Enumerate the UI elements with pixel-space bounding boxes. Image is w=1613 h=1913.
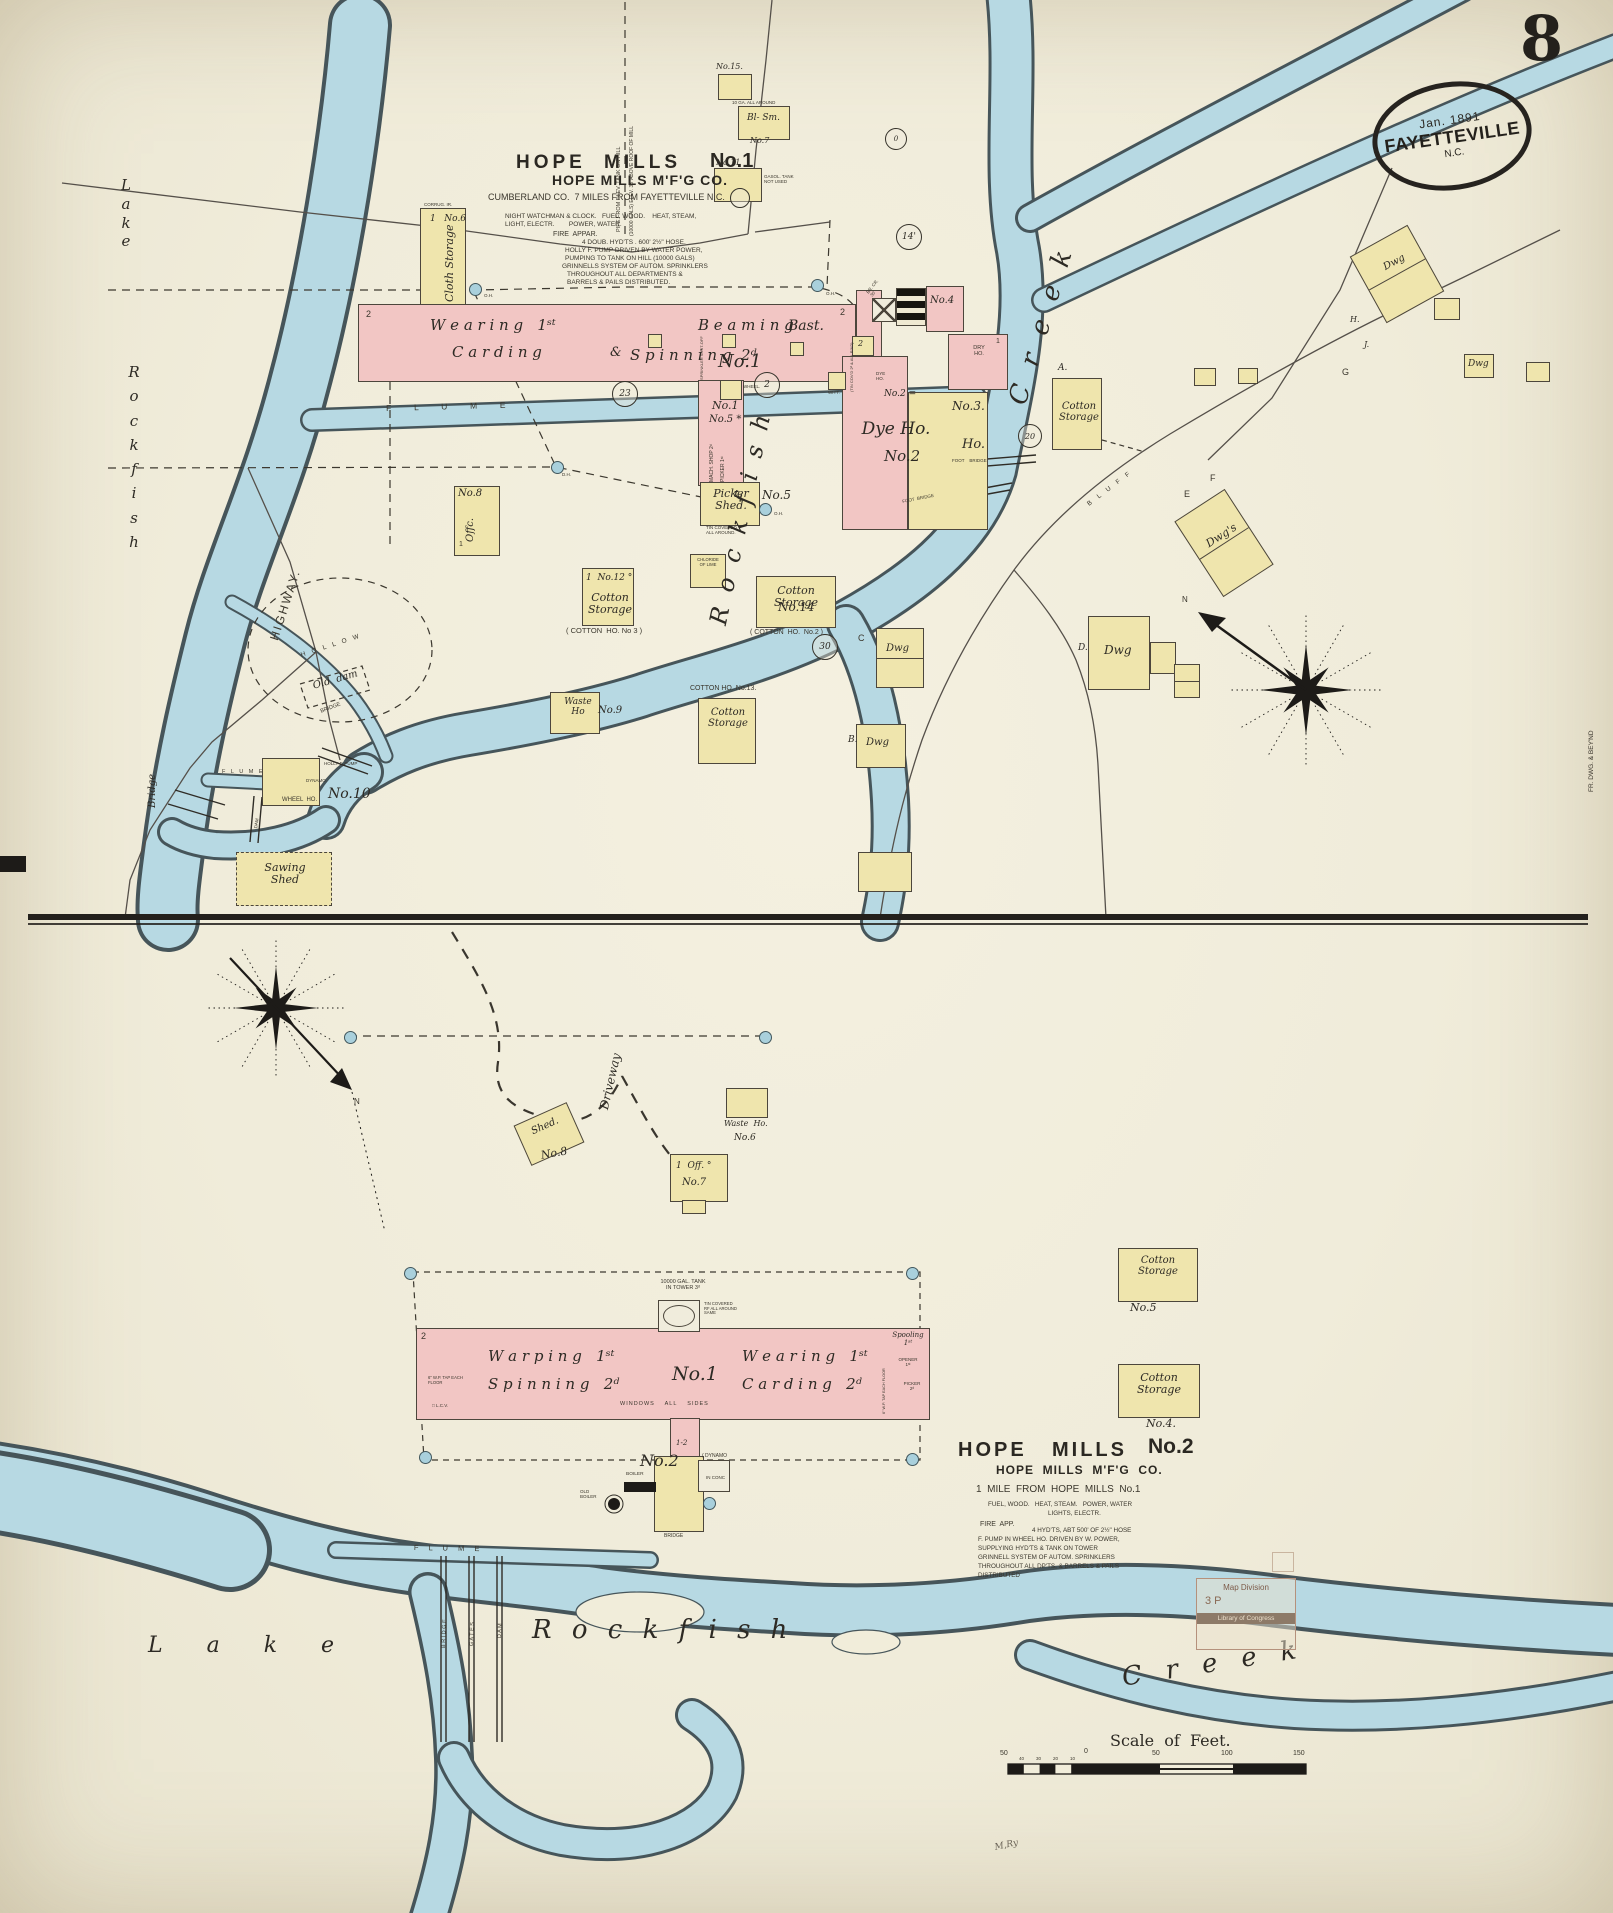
- lbl-compass2-n: N: [354, 1098, 360, 1107]
- lbl-dynamo2: ( DYNAMO: [702, 1454, 727, 1459]
- lbl-wptap: 6" W.P. TAP EACHFLOOR: [428, 1376, 472, 1385]
- bldg-no15: [718, 74, 752, 100]
- waypoint-14: 14': [896, 224, 922, 250]
- lbl-off7: 1 Off. °: [676, 1162, 711, 1172]
- lbl-sprinkler-riser: SPRINKLER SHUT-OFF: [700, 336, 704, 380]
- lbl-tincov-tower: TIN COVEREDRF ALL AROUNDSAME: [704, 1302, 760, 1316]
- lbl-box2: 2: [858, 340, 863, 349]
- waypoint-20: 20: [1018, 424, 1042, 448]
- pipe-note-1: PIPE FROM ELEV. TANK ON HILL: [617, 147, 623, 232]
- lbl-no5d: No.5: [1130, 1302, 1157, 1314]
- compass-rose-bottom: [206, 938, 385, 1232]
- bldg-waste-no6: [726, 1088, 768, 1118]
- scale-150: 150: [1293, 1750, 1305, 1758]
- lbl-carding1: C a r d i n g: [452, 344, 542, 360]
- scale-bar: [1008, 1764, 1306, 1774]
- lbl-cotton-ho3: ( COTTON HO. No 3 ): [566, 627, 642, 635]
- lbl-wearing1: W e a r i n g 1ˢᵗ: [430, 317, 556, 333]
- title2-no2: No.2: [1148, 1436, 1194, 1459]
- note2-grinnell: GRINNELL SYSTEM OF AUTOM. SPRINKLERS: [978, 1555, 1115, 1562]
- lbl-fr-dwg: FR. DWG. & BEY'ND: [1588, 730, 1595, 792]
- waypoint-30: 30: [812, 634, 838, 660]
- note2-fuel: FUEL, WOOD. HEAT, STEAM. POWER, WATER: [988, 1502, 1132, 1509]
- lbl-tank: 10000 GAL. TANKIN TOWER 3ᵈ: [640, 1280, 726, 1292]
- yard2-c2: [906, 1267, 919, 1280]
- lbl-one-dry: 1: [996, 338, 1000, 346]
- hydrant-oh2: [811, 279, 824, 292]
- lbl-corrug: CORRUG. IR.: [424, 203, 452, 208]
- title-cumberland: CUMBERLAND CO. 7 MILES FROM FAYETTEVILLE…: [488, 193, 725, 203]
- bldg-dwg-s: [858, 852, 912, 892]
- lbl-machshop: MACH. SHOP 2ᵈ: [710, 444, 715, 482]
- scale-100: 100: [1221, 1750, 1233, 1758]
- title2-mfg: HOPE MILLS M'F'G CO.: [996, 1464, 1163, 1477]
- lbl-no3: No.3.: [952, 400, 985, 413]
- lbl-no15: No.15.: [716, 63, 743, 72]
- lbl-bridge-v: Bridge: [148, 774, 159, 808]
- lbl-10ga: 10 GA. ALL AROUND: [732, 101, 775, 106]
- lbl-oh3: O.H.: [774, 512, 783, 517]
- lbl-gasol: GASOL. TANKNOT USED: [764, 175, 794, 185]
- lbl-no10: No.10: [328, 787, 371, 802]
- note-light: LIGHT, ELECTR. POWER, WATER.: [505, 221, 622, 228]
- lbl-oh2: O.H.: [826, 292, 835, 297]
- lbl-dye-ho: Dye Ho.: [848, 420, 944, 438]
- bldg-tank-tower: [658, 1300, 700, 1332]
- title2-mills: MILLS: [1052, 1440, 1127, 1462]
- scale-30: 30: [1036, 1757, 1041, 1762]
- lbl-no7-top: No.7: [750, 137, 769, 146]
- lbl-acs-a: A.: [1058, 364, 1067, 374]
- stamp-small-box: [1272, 1552, 1294, 1572]
- lbl-wheel-sm: WHEEL.: [743, 385, 760, 390]
- sanborn-map-sheet: 8 Jan. 1891 FAYETTEVILLE N.C. Map Divisi…: [0, 0, 1613, 1913]
- lbl-beaming: B e a m i n g: [698, 317, 794, 333]
- note-barrels: BARRELS & PAILS DISTRIBUTED.: [567, 279, 670, 286]
- bldg-wheel-box: [720, 380, 742, 400]
- lbl-no6b: No.6: [734, 1134, 756, 1144]
- bldg-wht-box: [828, 372, 846, 390]
- note-throughout: THROUGHOUT ALL DEPARTMENTS &: [567, 271, 683, 278]
- lbl-story2b: 2: [840, 308, 845, 318]
- pipe2-d1: [344, 1031, 357, 1044]
- lbl-cotton4: CottonStorage: [1126, 1372, 1192, 1396]
- lbl-tincov-dye: (TIN COV'D 2ᵈ & ALL R'ND): [850, 342, 854, 392]
- lbl-no7b: No.7: [682, 1178, 706, 1189]
- lbl-wearing2: W e a r i n g 1ˢᵗ: [742, 1348, 868, 1364]
- lbl-oh1: O.H.: [484, 294, 493, 299]
- scale-0: 0: [1084, 1748, 1088, 1756]
- lbl-dry-ho: DRYHO.: [962, 346, 996, 358]
- lbl-bridge-dam: B R I D G E: [442, 1619, 449, 1648]
- lbl-road-h: H.: [1350, 316, 1360, 325]
- lbl-cotton-ho13: COTTON HO. No.13.: [690, 685, 756, 693]
- lbl-inconc: IN CONC: [706, 1476, 725, 1481]
- lbl-sawing-shed: SawingShed: [252, 862, 318, 886]
- lbl-no12: 1 No.12 °: [586, 574, 632, 584]
- lbl-wheel-ho: WHEEL HO.: [282, 797, 317, 803]
- lbl-lcv: □ L.C.V.: [432, 1404, 448, 1409]
- lbl-spinning2: S p i n n i n g 2ᵈ: [488, 1376, 619, 1392]
- note2-hydts: 4 HYD'TS, ABT 500' OF 2½" HOSE: [1032, 1528, 1131, 1535]
- bldg-dwg-annex: [1150, 642, 1176, 674]
- lbl-no1-mill: No.1: [718, 352, 761, 371]
- lbl-no5-shed: No.5: [762, 489, 791, 502]
- library-stamp: Map Division 3 P Library of Congress: [1196, 1578, 1296, 1650]
- bldg-boiler-bar: [624, 1482, 656, 1492]
- note-grinnell: GRINNELLS SYSTEM OF AUTOM. SPRINKLERS: [562, 263, 708, 270]
- waypoint-23: 23: [612, 381, 638, 407]
- lbl-dye-vert: DYEHO.: [876, 372, 894, 382]
- lbl-road-g: G: [1342, 368, 1349, 378]
- bldg-small-pair: [1174, 664, 1200, 698]
- lbl-wht: WH'T.: [828, 391, 840, 396]
- lbl-cotton13: CottonStorage: [702, 708, 754, 730]
- lbl-opener: OPENER1ˢᵗ: [892, 1358, 924, 1368]
- lbl-no5-ann: No.5 *: [709, 415, 741, 426]
- note-holly: HOLLY F. PUMP DRIVEN BY WATER POWER,: [565, 247, 703, 254]
- lbl-conn12: 1-2: [676, 1440, 687, 1448]
- note-fire: FIRE APPAR.: [553, 231, 598, 239]
- lbl-no14: No.14: [778, 601, 815, 614]
- lbl-rockfish-vert: Rockfish: [124, 360, 144, 554]
- lbl-spooling: Spooling1ˢᵗ: [888, 1332, 928, 1347]
- lbl-picker1: PICKER 1ˢᵗ: [721, 456, 726, 482]
- lbl-road-f: F: [1210, 474, 1216, 484]
- stamp-division: Map Division: [1197, 1583, 1295, 1592]
- lbl-no2-sm: No.2 =: [884, 390, 916, 400]
- waypoint-0: 0: [885, 128, 907, 150]
- lbl-story2a: 2: [366, 310, 371, 320]
- lbl-dwg-d: Dwg: [1104, 644, 1132, 657]
- scale-title: Scale of Feet.: [1110, 1732, 1231, 1749]
- lbl-no8: No.8: [458, 489, 482, 500]
- lbl-windows: WINDOWS ALL SIDES: [620, 1402, 709, 1408]
- bldg-no4-bars: [896, 288, 926, 326]
- bldg-office-no7-ell: [682, 1200, 706, 1214]
- lbl-road-b: B.: [848, 736, 857, 746]
- lbl-one-offc: 1: [459, 541, 463, 549]
- title2-hope: HOPE: [958, 1440, 1027, 1462]
- lbl-cotton-ho2: ( COTTON HO. No.2 ): [750, 629, 823, 637]
- hydrant-oh1: [469, 283, 482, 296]
- bldg-no4: [926, 286, 964, 332]
- bldg-tr5: [1194, 368, 1216, 386]
- lbl-wptap2: 6" W.P. TAP EACH FLOOR: [882, 1368, 886, 1414]
- pipe-note-2: (10000 GALS) ELEV. 36' ABOVE ROOF OF MIL…: [630, 126, 635, 236]
- waypoint-blank: [730, 188, 750, 208]
- note2-distributed: DISTRIBUTED: [978, 1573, 1020, 1580]
- lbl-blsm: Bl- Sm.: [747, 114, 780, 124]
- lbl-cotton12: CottonStorage: [586, 592, 634, 616]
- title2-mile: 1 MILE FROM HOPE MILLS No.1: [976, 1485, 1141, 1496]
- stamp-code: 3 P: [1197, 1595, 1295, 1607]
- lbl-dwg-c: Dwg: [886, 644, 909, 655]
- lbl-holly-pump: HOLLY F. PUMP: [324, 762, 357, 767]
- lbl-waste9: WasteHo: [558, 698, 598, 717]
- scale-20: 20: [1053, 1757, 1058, 1762]
- dashed-lines-layer: [108, 2, 1145, 1460]
- lbl-no2-mill2: No.2: [640, 1452, 679, 1469]
- title-hope: HOPE: [516, 153, 586, 174]
- lbl-flume-bot: F L U M E: [414, 1544, 484, 1553]
- note2-fpump: F. PUMP IN WHEEL HO. DRIVEN BY W. POWER,: [978, 1537, 1120, 1544]
- lbl-no11: No.11: [716, 159, 740, 168]
- section-divider: [28, 914, 1588, 925]
- lbl-road-d: D.: [1078, 644, 1088, 654]
- yard2-c1: [404, 1267, 417, 1280]
- note2-lights: LIGHTS, ELECTR.: [1048, 1511, 1101, 1518]
- lbl-footbridge1: FOOT BRIDGE: [952, 459, 987, 464]
- lbl-lake-bot: L a k e: [148, 1634, 344, 1658]
- lbl-dh1: D.H.: [562, 473, 571, 478]
- lbl-bridge2: BRIDGE: [664, 1534, 683, 1539]
- title-mfg: HOPE MILLS M'F'G CO.: [552, 173, 728, 188]
- bldg-crosshatch: [872, 298, 896, 322]
- yard2-c4: [906, 1453, 919, 1466]
- scale-50b: 50: [1152, 1750, 1160, 1758]
- lbl-carding2: C a r d i n g 2ᵈ: [742, 1376, 862, 1392]
- bldg-sprinkler-sq3: [790, 342, 804, 356]
- lbl-gates: G A T E S: [470, 1622, 477, 1646]
- lbl-lake-vert: Lake: [116, 176, 136, 251]
- lbl-road-e: E: [1184, 490, 1190, 500]
- note2-throughout: THROUGHOUT ALL DP'TS, & BARRELS & PAILS: [978, 1564, 1119, 1571]
- lbl-no1-mill2: No.1: [672, 1364, 718, 1385]
- compass-rose-top: [1198, 612, 1384, 768]
- lbl-offc: Offc.: [466, 518, 477, 542]
- lbl-no9: No.9: [598, 706, 622, 717]
- lbl-dwg-e: Dwg: [1468, 360, 1489, 370]
- lbl-story2c: 2: [421, 1332, 426, 1342]
- lbl-no4: No.4: [930, 296, 954, 307]
- lbl-cotton5: CottonStorage: [1126, 1256, 1190, 1278]
- scale-10: 10: [1070, 1757, 1075, 1762]
- note-pumping: PUMPING TO TANK ON HILL (10000 GALS): [565, 255, 695, 262]
- lbl-no1-ann: No.1: [712, 400, 739, 412]
- note-watchman: NIGHT WATCHMAN & CLOCK. FUEL, WOOD. HEAT…: [505, 213, 696, 220]
- note2-supplying: SUPPLYING HYD'TS & TANK ON TOWER: [978, 1546, 1098, 1553]
- lbl-dwg-b: Dwg: [866, 738, 889, 749]
- wheel2-dot: [703, 1497, 716, 1510]
- lbl-waste6: Waste Ho.: [724, 1120, 768, 1129]
- bldg-dwg-c: [876, 628, 924, 688]
- lbl-dynamo1: DYNAMO.: [306, 779, 327, 784]
- lbl-rockfish-bot: R o c k f i s h: [532, 1616, 793, 1644]
- lbl-bast: Bast.: [788, 319, 824, 334]
- lbl-road-c: C: [858, 634, 865, 644]
- yard2-c3: [419, 1451, 432, 1464]
- lbl-no2-big: No.2: [884, 448, 920, 464]
- scale-50a: 50: [1000, 1750, 1008, 1758]
- note2-fireapp: FIRE APP.: [980, 1521, 1015, 1529]
- stamp-library: Library of Congress: [1197, 1613, 1295, 1624]
- lbl-ho3: Ho.: [962, 438, 985, 452]
- lbl-old-boiler: OLDBOILER: [580, 1490, 610, 1500]
- hydrant-oh3: [759, 503, 772, 516]
- lbl-dam2: D A M: [498, 1623, 504, 1638]
- bldg-tr6: [1238, 368, 1258, 384]
- lbl-warping: W a r p i n g 1ˢᵗ: [488, 1348, 614, 1364]
- lbl-acs: CottonStorage: [1056, 402, 1102, 424]
- lbl-amp: &: [610, 346, 622, 360]
- lbl-no4c: No.4.: [1146, 1418, 1176, 1430]
- scale-40: 40: [1019, 1757, 1024, 1762]
- note-hydts: 4 DOUB. HYD'TS . 600' 2½" HOSE.: [582, 239, 686, 246]
- lbl-cloth-storage: Cloth Storage: [444, 224, 456, 302]
- lbl-picker2: PICKER2ᵈ: [896, 1382, 928, 1392]
- badge-state: N.C.: [1444, 146, 1465, 160]
- margin-index-tick: [0, 856, 26, 872]
- lbl-boiler: BOILER: [626, 1472, 644, 1477]
- lbl-compass1-n: N: [1182, 596, 1188, 605]
- bldg-tr4: [1526, 362, 1550, 382]
- lbl-flume-wheel: F L U M E: [222, 770, 265, 776]
- bldg-tr2: [1434, 298, 1460, 320]
- lbl-road-j: J.: [1364, 341, 1369, 350]
- page-number: 8: [1520, 2, 1563, 75]
- pipe2-d2: [759, 1031, 772, 1044]
